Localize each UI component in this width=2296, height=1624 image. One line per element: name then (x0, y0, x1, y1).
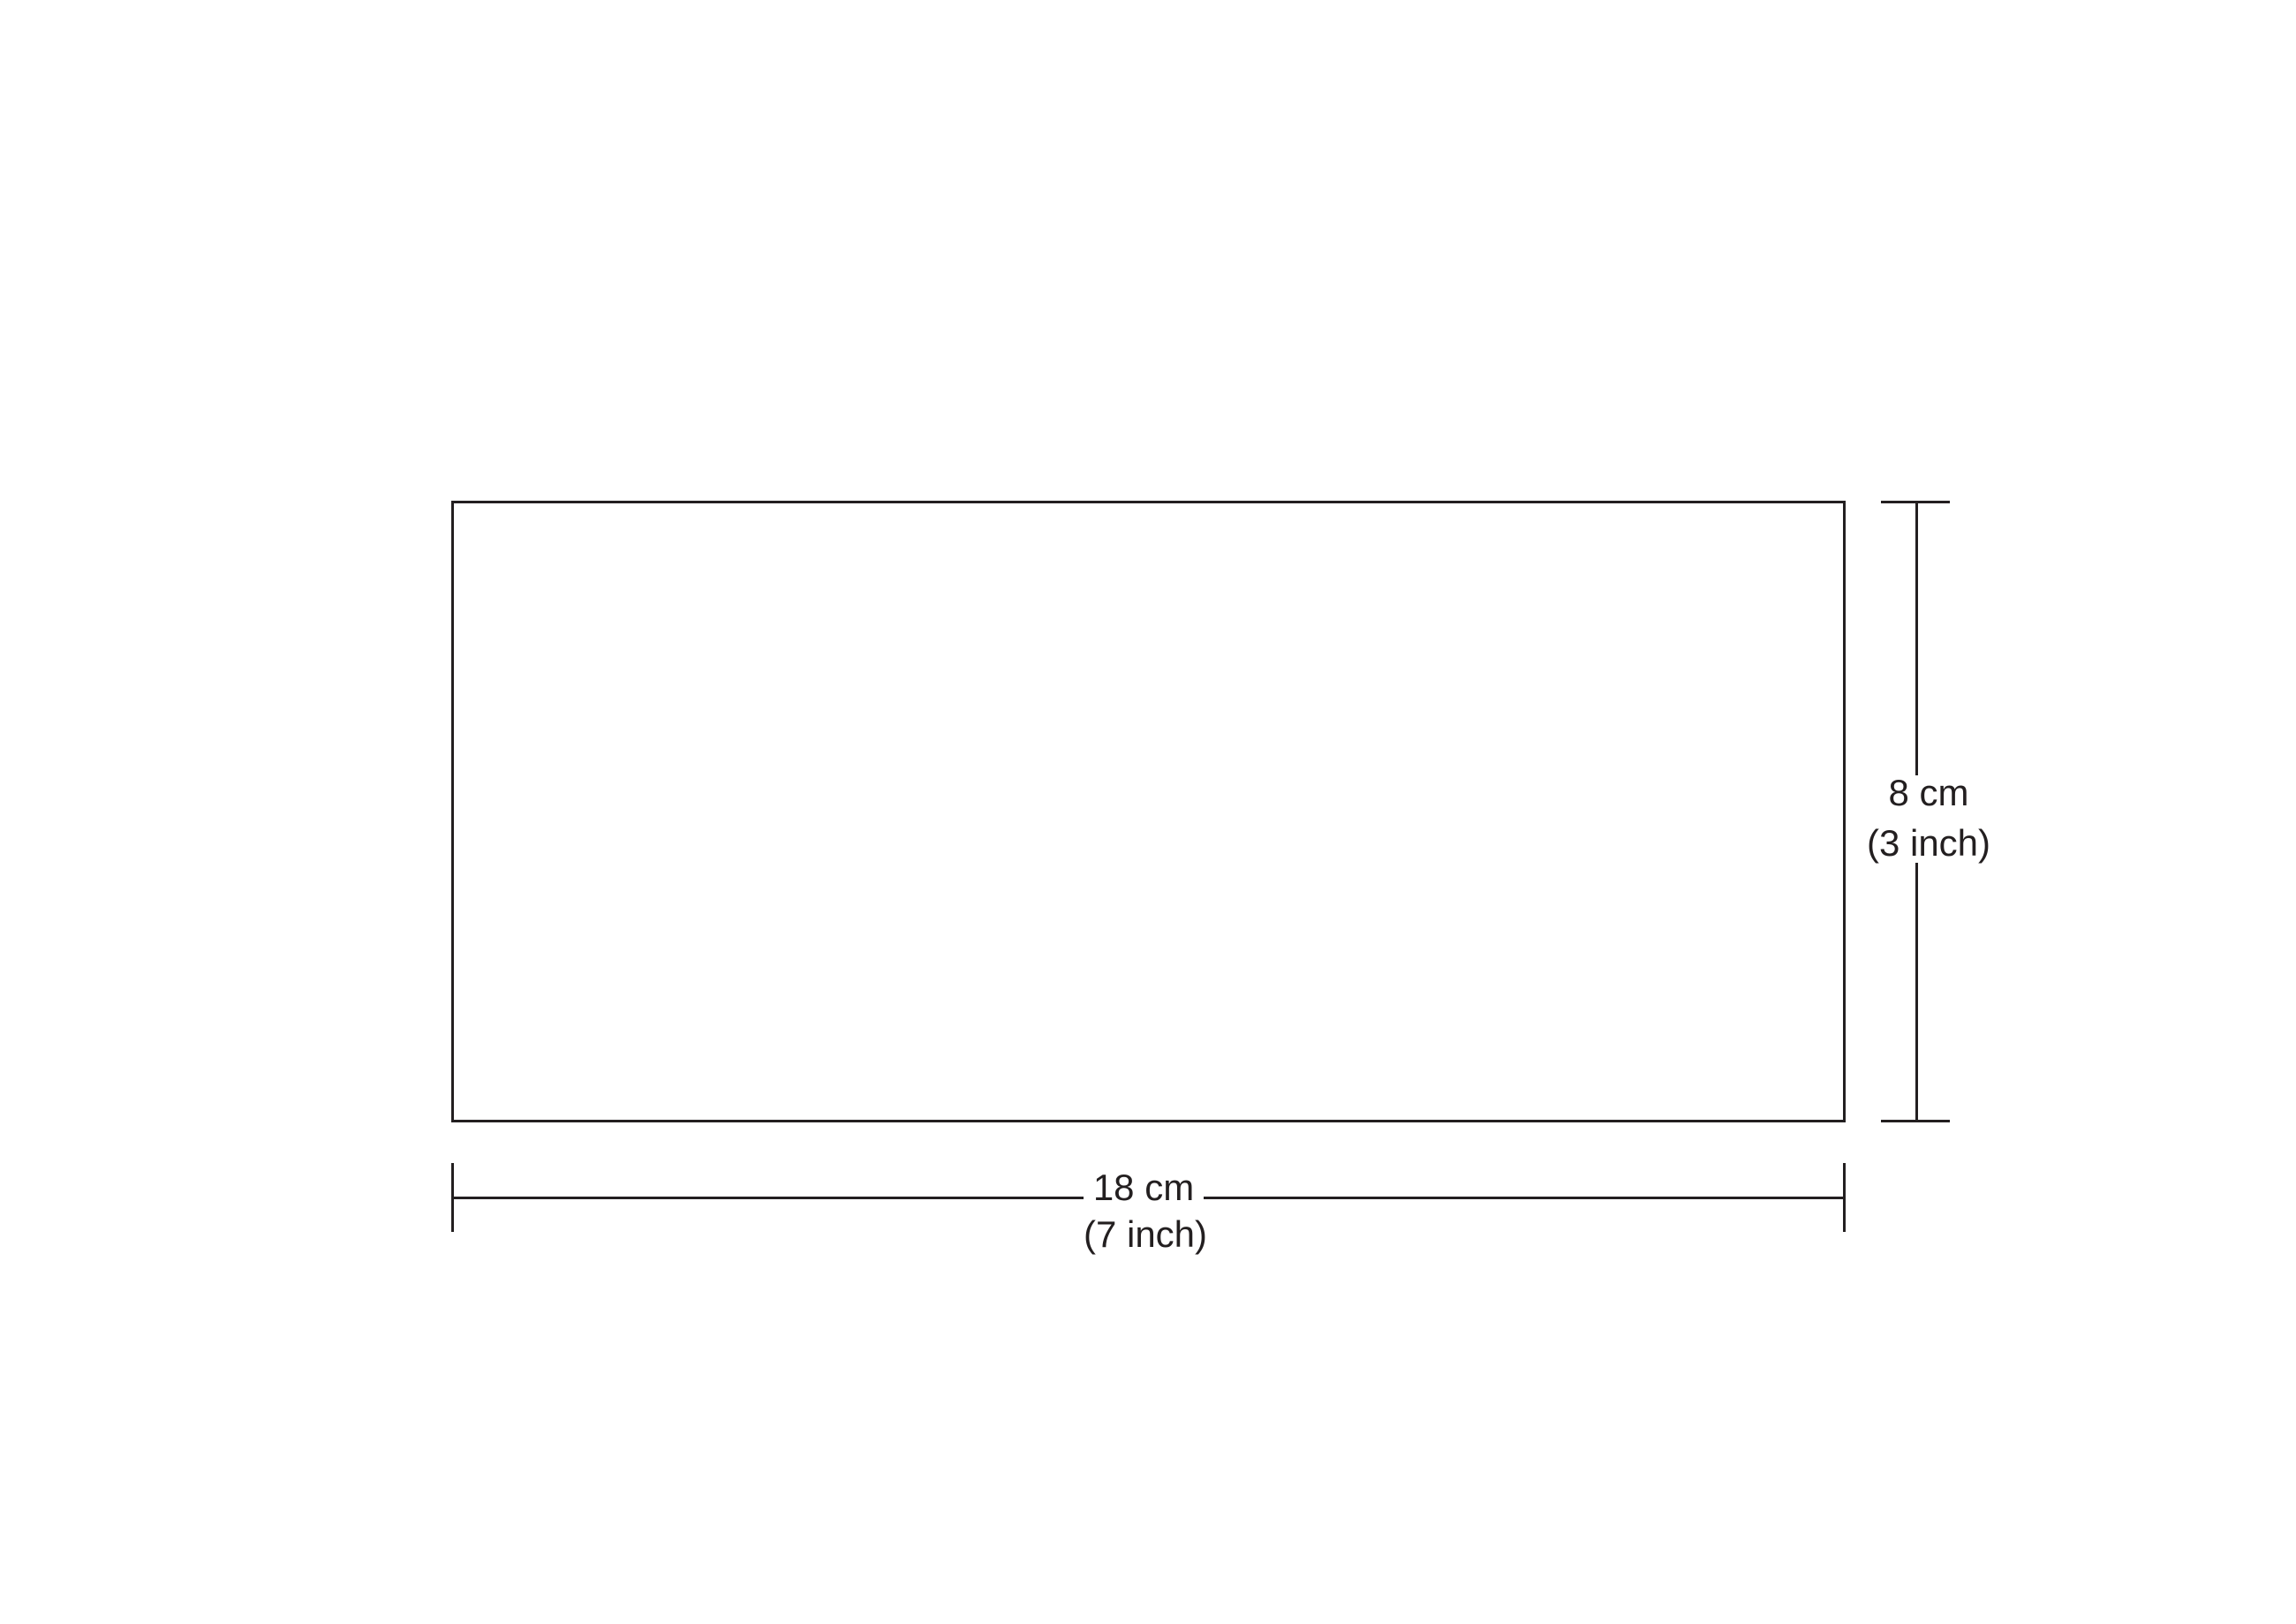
width-dimension-end-tick-left (451, 1163, 454, 1232)
height-dimension-metric-label: 8 cm (1888, 774, 1968, 812)
height-dimension-imperial-label: (3 inch) (1867, 825, 1990, 862)
diagram-canvas: 18 cm (7 inch) 8 cm (3 inch) (0, 0, 2296, 1624)
width-dimension-imperial-label: (7 inch) (1084, 1216, 1207, 1253)
height-dimension-end-tick-bottom (1881, 1120, 1950, 1122)
height-dimension-line-bottom-segment (1915, 863, 1918, 1122)
width-dimension-end-tick-right (1843, 1163, 1846, 1232)
width-dimension-line-left-segment (451, 1197, 1084, 1199)
width-dimension-metric-label: 18 cm (1093, 1169, 1194, 1206)
height-dimension-end-tick-top (1881, 501, 1950, 503)
rectangle-shape (451, 501, 1846, 1122)
width-dimension-line-right-segment (1204, 1197, 1846, 1199)
height-dimension-line-top-segment (1915, 501, 1918, 775)
